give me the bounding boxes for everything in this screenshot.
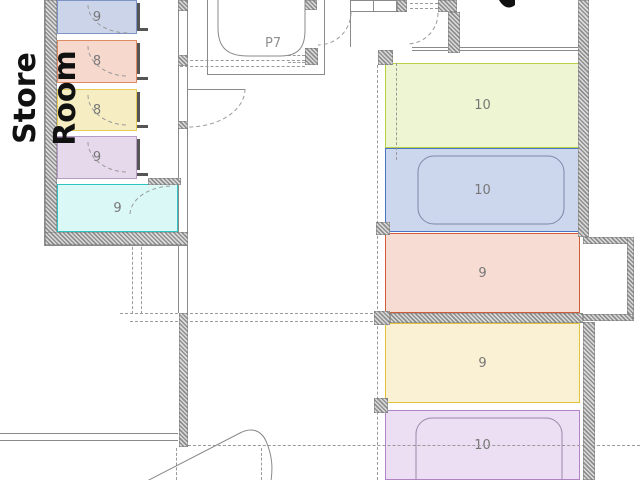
dashed-line [377, 65, 378, 480]
wall-segment [578, 0, 589, 237]
room-number: 8 [93, 54, 101, 69]
door-jamb [137, 139, 140, 170]
door-jamb [137, 28, 148, 31]
dashed-line [410, 3, 438, 4]
floor-plan: 9 8 8 9 9 10 10 9 9 10 [0, 0, 640, 480]
store-room-label: Store Room [6, 0, 46, 196]
door-jamb [137, 173, 148, 176]
door-swing-arc [407, 13, 438, 44]
dashed-line [288, 55, 305, 56]
door-swing-arc [188, 89, 245, 127]
room-number: 9 [113, 201, 121, 216]
wall-segment [305, 48, 318, 65]
room-green: 10 [385, 63, 580, 148]
wall-segment [397, 0, 407, 12]
room-blue-bed: 10 [385, 148, 580, 232]
wall-pier [376, 222, 390, 235]
room-number: 9 [93, 150, 101, 165]
wall-segment [305, 0, 317, 10]
wall-line [187, 0, 188, 313]
dashed-line [261, 448, 262, 480]
wall-segment [178, 55, 188, 66]
dashed-line [132, 242, 133, 314]
room-number: 9 [93, 10, 101, 25]
dashed-line [176, 448, 177, 480]
dashed-line [288, 62, 305, 63]
dashed-line [396, 63, 397, 160]
bathtub-fixture-label: P7 [265, 36, 281, 51]
balcony-wall [583, 237, 633, 244]
wall-segment [438, 0, 457, 12]
dashed-line [130, 321, 388, 322]
balcony-wall [583, 314, 633, 321]
wall-segment [448, 12, 460, 53]
room-number: 9 [478, 356, 486, 371]
door-leaf-line [350, 12, 351, 47]
wall-segment [148, 178, 181, 185]
door-jamb [137, 43, 140, 74]
wall-line [412, 47, 578, 48]
room-number: 8 [93, 103, 101, 118]
wall-line [0, 440, 178, 441]
wall-segment [583, 322, 595, 480]
wall-pier [374, 311, 390, 325]
dashed-line [180, 60, 305, 61]
door-jamb [137, 125, 148, 128]
store-room-cyan: 9 [57, 184, 178, 232]
dashed-line [141, 242, 142, 314]
room-number: 10 [474, 183, 491, 198]
wall-segment [45, 232, 188, 245]
room-number: 9 [478, 266, 486, 281]
room-number: 10 [474, 98, 491, 113]
store-room-blue: 9 [57, 0, 137, 34]
door-jamb [137, 3, 140, 28]
wall-line [188, 89, 245, 90]
sofa-outline [147, 430, 272, 480]
wall-segment [390, 313, 583, 323]
room-salmon: 9 [385, 233, 580, 313]
dashed-line [410, 8, 438, 9]
wall-line [0, 433, 178, 434]
dashed-line [180, 66, 305, 67]
wall-segment [178, 121, 188, 129]
wall-line [178, 0, 179, 313]
cabinet-divider-line [373, 0, 374, 12]
wall-segment [178, 0, 188, 11]
dashed-line [183, 445, 640, 446]
wall-segment [378, 50, 393, 65]
wall-segment [179, 313, 188, 447]
wall-line [45, 245, 188, 246]
door-jamb [137, 92, 140, 122]
door-jamb [137, 77, 148, 80]
dashed-line [120, 313, 388, 314]
cropped-letter-glyph [499, 0, 515, 7]
room-yellow: 9 [385, 323, 580, 403]
wall-pier [374, 398, 388, 413]
wall-line [412, 50, 578, 51]
balcony-wall [627, 237, 634, 321]
